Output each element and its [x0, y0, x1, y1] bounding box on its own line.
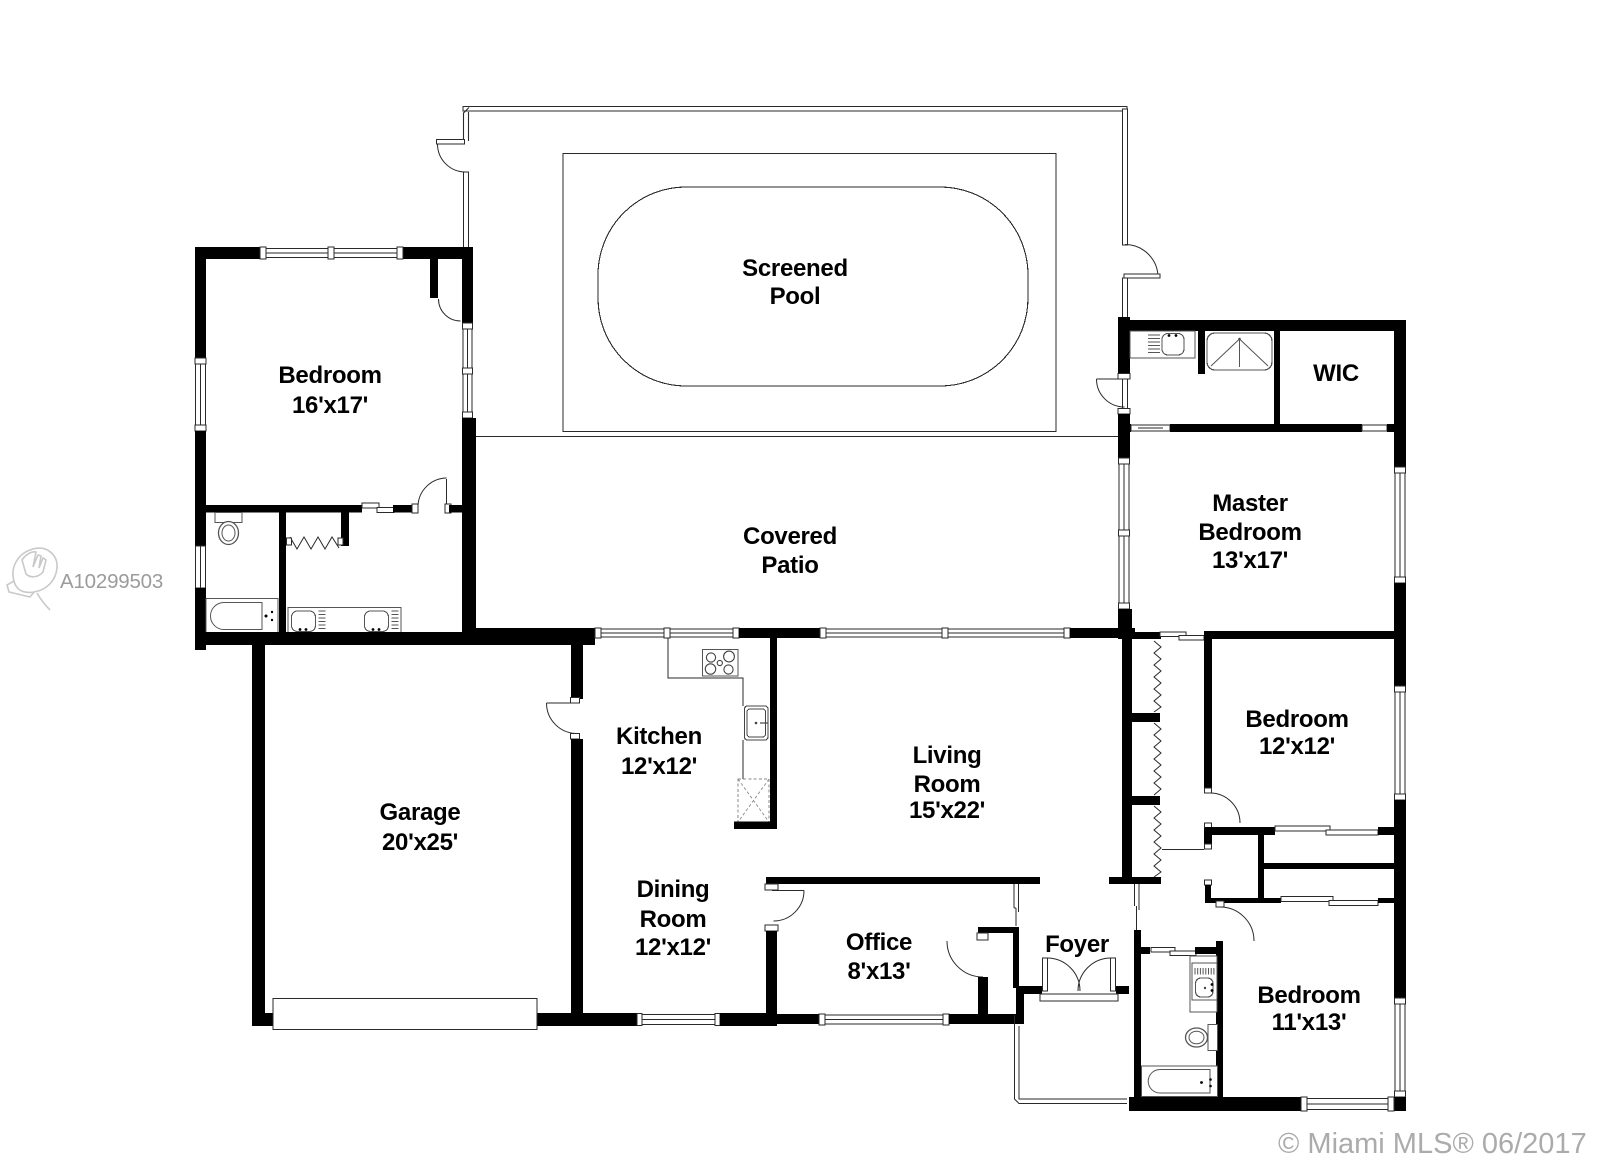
- svg-text:Bedroom: Bedroom: [1198, 519, 1301, 546]
- svg-text:Kitchen: Kitchen: [616, 723, 702, 750]
- svg-text:16'x17': 16'x17': [292, 392, 368, 419]
- svg-text:Covered: Covered: [743, 523, 837, 550]
- svg-text:Living: Living: [913, 742, 982, 769]
- svg-text:Master: Master: [1212, 490, 1288, 517]
- svg-text:12'x12': 12'x12': [635, 934, 711, 961]
- svg-text:Bedroom: Bedroom: [1245, 706, 1348, 733]
- svg-text:12'x12': 12'x12': [621, 753, 697, 780]
- svg-text:13'x17': 13'x17': [1212, 547, 1288, 574]
- svg-text:WIC: WIC: [1313, 360, 1359, 387]
- svg-text:11'x13': 11'x13': [1272, 1009, 1347, 1036]
- svg-text:Garage: Garage: [380, 799, 461, 826]
- svg-text:Bedroom: Bedroom: [1257, 982, 1360, 1009]
- svg-text:© Miami MLS® 06/2017: © Miami MLS® 06/2017: [1278, 1128, 1587, 1160]
- svg-text:Bedroom: Bedroom: [278, 362, 381, 389]
- svg-text:Room: Room: [914, 771, 981, 798]
- svg-text:Dining: Dining: [637, 876, 710, 903]
- svg-text:Pool: Pool: [770, 283, 821, 310]
- svg-text:Foyer: Foyer: [1045, 931, 1109, 958]
- svg-text:Patio: Patio: [761, 552, 818, 579]
- svg-text:Office: Office: [846, 929, 912, 956]
- svg-text:A10299503: A10299503: [60, 570, 163, 593]
- svg-text:Room: Room: [640, 906, 707, 933]
- svg-text:12'x12': 12'x12': [1259, 733, 1335, 760]
- svg-text:20'x25': 20'x25': [382, 829, 458, 856]
- svg-text:Screened: Screened: [742, 255, 848, 282]
- svg-text:15'x22': 15'x22': [909, 797, 985, 824]
- svg-text:8'x13': 8'x13': [847, 958, 910, 985]
